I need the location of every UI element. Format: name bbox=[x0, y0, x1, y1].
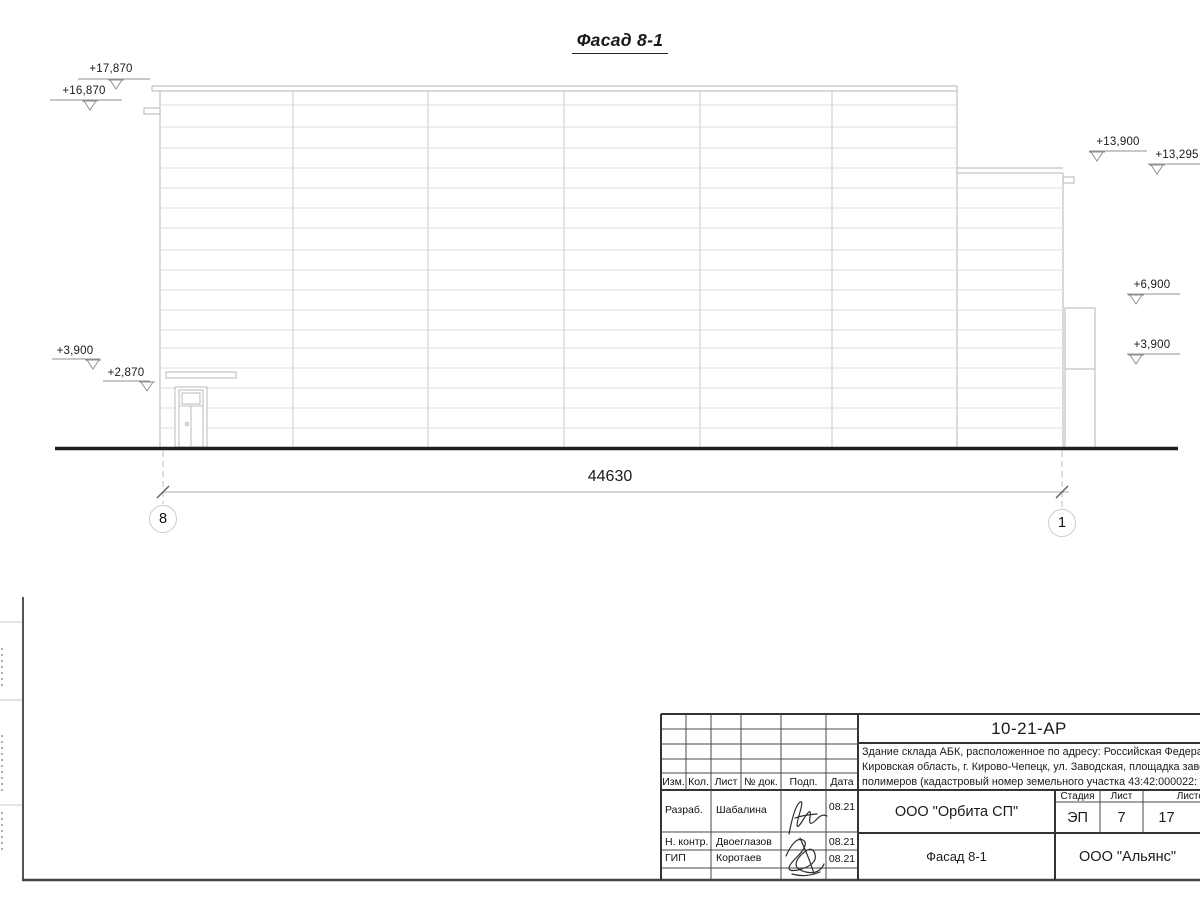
col-header-data: Дата bbox=[826, 773, 858, 790]
sheets-label: Листов bbox=[1143, 790, 1200, 802]
elevation-label-13295: +13,295 bbox=[1150, 149, 1200, 161]
drawing-title: Фасад 8-1 bbox=[572, 30, 669, 54]
axis-bubble-8: 8 bbox=[149, 505, 177, 533]
col-header-list: Лист bbox=[711, 773, 741, 790]
elevation-label-2870: +2,870 bbox=[104, 367, 148, 379]
project-description-line1: Здание склада АБК, расположенное по адре… bbox=[862, 745, 1200, 760]
row1-date: 08.21 bbox=[826, 798, 858, 815]
stage-value: ЭП bbox=[1055, 802, 1100, 833]
row3-role: ГИП bbox=[665, 852, 686, 864]
axis-bubbles bbox=[150, 506, 1076, 537]
project-description-line3: полимеров (кадастровый номер земельного … bbox=[862, 775, 1197, 790]
building-outline bbox=[144, 86, 1095, 448]
signature-scribbles bbox=[786, 802, 827, 876]
elevation-label-17870: +17,870 bbox=[78, 63, 144, 75]
row2-date: 08.21 bbox=[826, 833, 858, 850]
row2-name: Двоеглазов bbox=[716, 836, 772, 848]
elevation-marks bbox=[50, 79, 1200, 391]
drawing-sheet: Фасад 8-1 +17,870 +16,870 +3,900 +2,870 … bbox=[0, 0, 1200, 900]
col-header-kol: Кол. bbox=[686, 773, 711, 790]
elevation-label-13900: +13,900 bbox=[1091, 136, 1145, 148]
col-header-podp: Подп. bbox=[781, 773, 826, 790]
elevation-label-6900: +6,900 bbox=[1129, 279, 1175, 291]
panel-lines-lower bbox=[958, 188, 1062, 428]
entrance-door bbox=[166, 372, 236, 447]
elevation-label-3900-right: +3,900 bbox=[1129, 339, 1175, 351]
panel-lines-main bbox=[161, 105, 956, 428]
row2-role: Н. контр. bbox=[665, 836, 708, 848]
col-header-izm: Изм. bbox=[661, 773, 686, 790]
sheet-label: Лист bbox=[1100, 790, 1143, 802]
row1-role: Разраб. bbox=[665, 804, 703, 816]
elevation-label-16870: +16,870 bbox=[50, 85, 118, 97]
sheets-total: 17 bbox=[1143, 802, 1190, 833]
left-margin-strip bbox=[0, 622, 22, 805]
col-header-ndok: № док. bbox=[741, 773, 781, 790]
sheet-number: 7 bbox=[1100, 802, 1143, 833]
row3-name: Коротаев bbox=[716, 852, 761, 864]
design-org: ООО "Орбита СП" bbox=[858, 790, 1055, 833]
doc-code: 10-21-АР bbox=[858, 714, 1200, 743]
row3-date: 08.21 bbox=[826, 850, 858, 867]
drawing-title-wrap: Фасад 8-1 bbox=[540, 30, 700, 54]
stage-label: Стадия bbox=[1055, 790, 1100, 802]
project-description-line2: Кировская область, г. Кирово-Чепецк, ул.… bbox=[862, 760, 1200, 775]
overall-dimension: 44630 bbox=[558, 468, 662, 486]
row1-name: Шабалина bbox=[716, 804, 767, 816]
elevation-label-3900-left: +3,900 bbox=[53, 345, 97, 357]
axis-bubble-1: 1 bbox=[1048, 509, 1076, 537]
sheet-title: Фасад 8-1 bbox=[858, 833, 1055, 880]
contractor-firm: ООО "Альянс" bbox=[1055, 833, 1200, 880]
